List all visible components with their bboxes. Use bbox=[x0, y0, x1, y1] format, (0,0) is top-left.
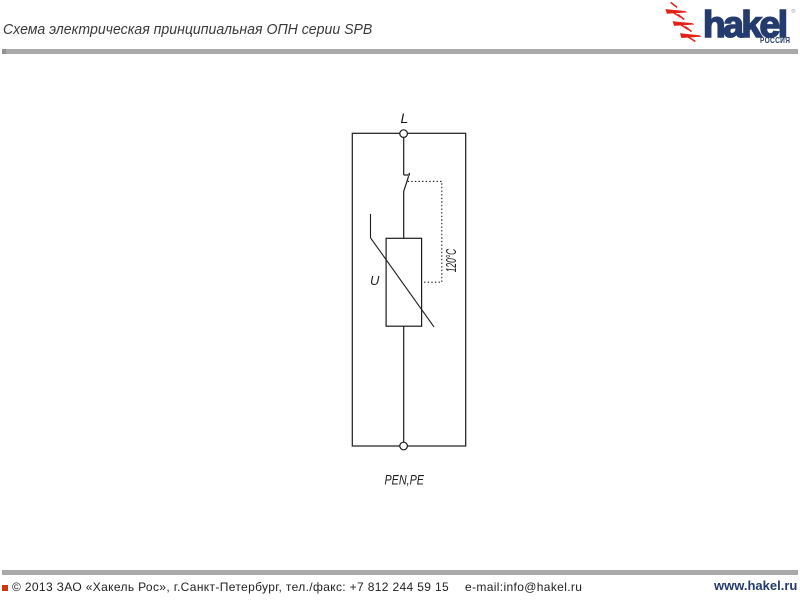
svg-text:PEN,PE: PEN,PE bbox=[385, 472, 425, 488]
svg-text:120°С: 120°С bbox=[444, 248, 460, 272]
svg-text:L: L bbox=[401, 110, 409, 126]
svg-text:U: U bbox=[370, 273, 380, 288]
